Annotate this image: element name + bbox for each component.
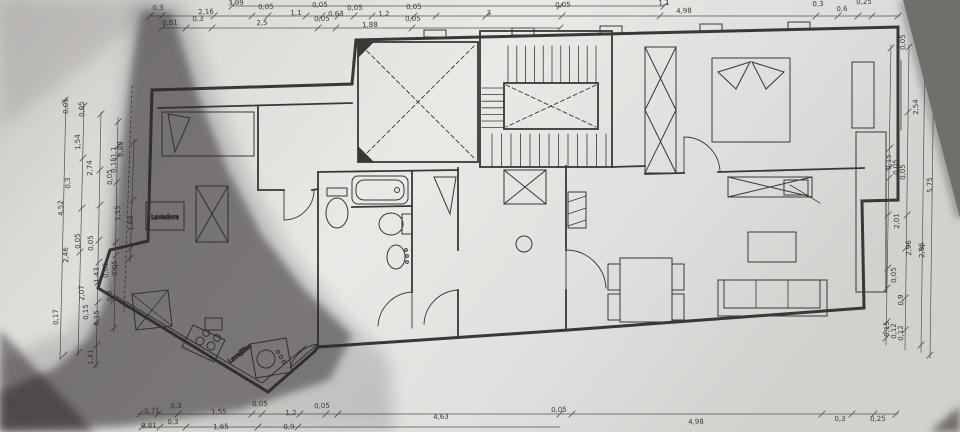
dimension-label: 0,05 bbox=[314, 15, 330, 24]
dimension-label: 0,3 bbox=[812, 0, 823, 8]
dimension-label: 2,07 bbox=[78, 285, 87, 301]
dimension-label: 0,05 bbox=[551, 406, 567, 415]
dimension-label: 3 bbox=[487, 9, 492, 17]
dimension-label: 0,05 bbox=[78, 101, 87, 117]
dimension-label: 0,05 bbox=[312, 1, 328, 10]
dimension-label: 1,54 bbox=[74, 134, 83, 150]
dimension-label: 0,25 bbox=[856, 0, 872, 6]
dimension-label: 0,05 bbox=[899, 164, 908, 180]
dimension-label: 5,75 bbox=[926, 177, 935, 193]
dimension-label: 0,05 bbox=[347, 4, 363, 13]
dimension-label: 2,46 bbox=[62, 247, 71, 263]
dimension-label: 0,3 bbox=[64, 177, 72, 188]
dimension-label: 4,98 bbox=[676, 7, 692, 16]
dimension-label: 0,05 bbox=[899, 34, 908, 50]
dimension-label: 4,98 bbox=[688, 418, 704, 427]
dimension-label: 1,1 bbox=[658, 0, 669, 7]
dimension-label: 1,2 bbox=[378, 10, 389, 18]
dimension-label: 0,3 bbox=[192, 15, 203, 23]
dimension-label: 0,6 bbox=[836, 5, 848, 13]
dimension-label: 0,3 bbox=[834, 415, 845, 423]
dimension-label: 2,74 bbox=[86, 160, 95, 176]
floorplan-svg: 3,991,10,32,160,051,10,050,630,051,20,05… bbox=[0, 0, 960, 432]
dimension-label: 2,5 bbox=[256, 19, 267, 27]
dimension-label: 0,05 bbox=[258, 3, 274, 12]
dimension-label: 0,05 bbox=[406, 3, 422, 12]
dimension-label: 0,25 bbox=[870, 415, 886, 424]
dimension-label: 0,05 bbox=[74, 233, 83, 249]
dimension-label: 0,63 bbox=[328, 10, 344, 19]
dimension-label: 0,17 bbox=[52, 309, 61, 325]
dimension-label: 3,99 bbox=[228, 0, 244, 7]
dimension-label: 2,96 bbox=[918, 242, 927, 258]
dimension-label: 2,01 bbox=[893, 213, 902, 229]
dimension-label: 2,96 bbox=[905, 240, 914, 256]
dimension-label: 0,05 bbox=[62, 98, 71, 114]
dimension-label: 0,12 bbox=[897, 325, 906, 341]
dimension-label: 2,54 bbox=[912, 99, 921, 115]
dimension-label: 0,05 bbox=[405, 15, 421, 24]
dimension-label: 0,05 bbox=[890, 267, 899, 283]
dimension-label: 1,88 bbox=[362, 21, 378, 30]
dimension-label: 0,05 bbox=[87, 235, 96, 251]
floorplan-photo: 3,991,10,32,160,051,10,050,630,051,20,05… bbox=[0, 0, 960, 432]
dimension-label: 4,52 bbox=[57, 200, 66, 216]
dimension-label: 1,1 bbox=[290, 9, 301, 17]
dimension-label: 4,63 bbox=[433, 413, 449, 422]
dimension-label: 0,9 bbox=[897, 294, 905, 305]
dimension-label: 0,05 bbox=[555, 1, 571, 10]
